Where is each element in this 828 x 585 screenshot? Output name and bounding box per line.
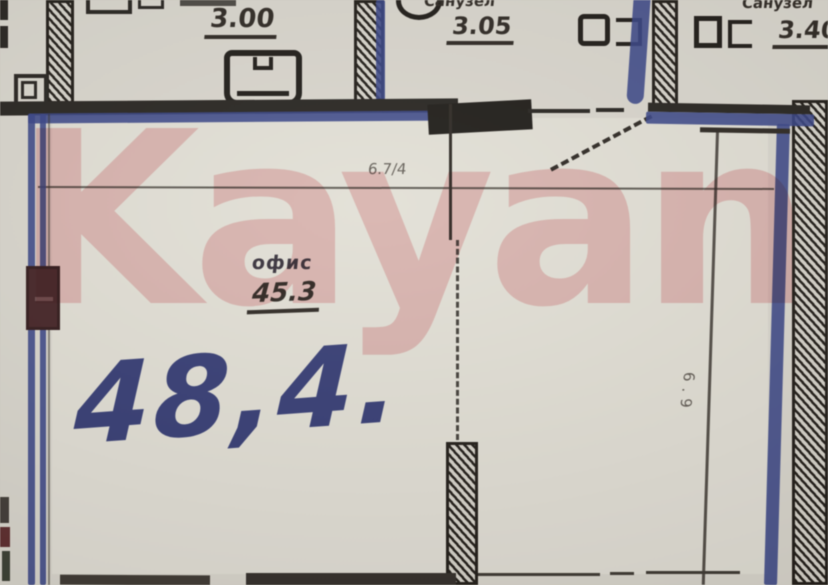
bottom-wall-left (60, 575, 210, 585)
bottom-wall-mid (246, 573, 456, 585)
washbasin-icon (578, 14, 610, 46)
partition-dashed-vertical (456, 240, 459, 440)
corridor-line-vertical (702, 132, 719, 585)
radiator (26, 266, 60, 330)
top-right-wall-lower-edge (700, 127, 790, 134)
main-room-area-label: 45.3 (247, 277, 322, 315)
ink-line-left-wall-outer (28, 114, 35, 585)
wall-hatch-left (46, 0, 74, 104)
ink-line-mid-wall (376, 0, 385, 106)
fixture-bracket (728, 20, 752, 48)
cabinet-symbol (138, 0, 164, 9)
watermark-text: Kayan (14, 100, 804, 340)
handwritten-area-note: 48,4. (72, 318, 404, 470)
bottom-dash (610, 572, 634, 575)
dimension-top-label: 6.7/4 (367, 160, 407, 178)
ink-line-top-wall (28, 111, 456, 124)
left-wall-edge (48, 114, 50, 585)
room3-name-label: Санузел (741, 0, 814, 12)
toilet-icon (224, 50, 302, 106)
wall-hatch-right-top (652, 0, 678, 110)
ink-line-top-right-wall (646, 112, 814, 127)
room3-area-label: 3.40 (772, 16, 828, 49)
bottom-line-right (478, 573, 600, 576)
scan-edge-mark (0, 26, 8, 48)
toilet-seat (237, 91, 289, 96)
main-room-name-label: офис (251, 252, 314, 274)
entry-dash (596, 108, 624, 112)
cabinet-symbol (86, 0, 132, 14)
scan-artifact (2, 551, 10, 581)
scan-artifact (0, 527, 10, 547)
radiator-inner-line (35, 297, 53, 301)
ink-stroke-vertical (626, 0, 650, 104)
partition-hatch-wall (446, 442, 478, 585)
toilet-tank (253, 57, 273, 70)
partition-line-vertical (449, 104, 452, 240)
right-wall-hatch (792, 100, 828, 585)
ink-line-right-wall (764, 124, 790, 585)
scan-artifact (0, 497, 9, 523)
door-swing-dashed (550, 114, 653, 171)
fixture-small-left-inner (21, 81, 37, 99)
beam-line (38, 186, 774, 190)
entry-wall-line (528, 109, 590, 113)
bottom-line-far-right (646, 571, 740, 574)
dimension-right-vertical-label: 6.9 (676, 372, 698, 414)
fixture-bracket (694, 16, 722, 48)
scan-edge-mark (0, 0, 8, 20)
floorplan-photo: 3.00 Санузел 3.05 Санузел 3.40 6.7/4 офи… (0, 0, 828, 585)
ink-line-left-wall-inner (40, 114, 46, 585)
room2-area-label: 3.05 (446, 12, 517, 45)
room2-name-label: Санузел (423, 0, 496, 10)
entry-wall-block (427, 99, 532, 134)
room1-area-label: 3.00 (204, 4, 280, 39)
